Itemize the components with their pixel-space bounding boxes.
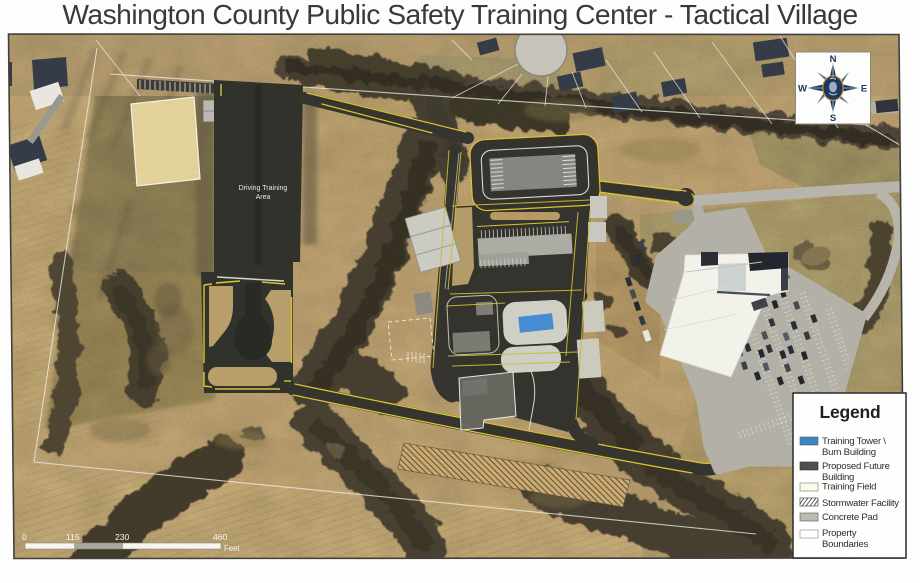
svg-text:Driving Training: Driving Training xyxy=(239,185,288,192)
svg-text:W: W xyxy=(798,84,807,95)
svg-text:230: 230 xyxy=(115,532,130,542)
svg-text:N: N xyxy=(830,54,837,65)
svg-text:Proposed Future: Proposed Future xyxy=(822,461,890,472)
svg-text:460: 460 xyxy=(213,532,228,542)
svg-text:E: E xyxy=(861,84,867,95)
svg-text:0: 0 xyxy=(22,532,27,542)
svg-text:Training Field: Training Field xyxy=(822,482,876,493)
svg-text:115: 115 xyxy=(66,532,80,542)
svg-text:Stormwater Facility: Stormwater Facility xyxy=(822,498,899,509)
svg-text:Concrete Pad: Concrete Pad xyxy=(822,512,878,523)
svg-text:Property: Property xyxy=(822,528,857,539)
svg-text:Feet: Feet xyxy=(224,544,240,553)
svg-text:S: S xyxy=(830,113,836,124)
svg-text:Legend: Legend xyxy=(819,402,880,422)
svg-text:Training Tower \: Training Tower \ xyxy=(822,436,886,447)
svg-text:Burn Building: Burn Building xyxy=(822,447,876,458)
svg-text:Boundaries: Boundaries xyxy=(822,539,868,550)
svg-text:Area: Area xyxy=(256,194,271,201)
